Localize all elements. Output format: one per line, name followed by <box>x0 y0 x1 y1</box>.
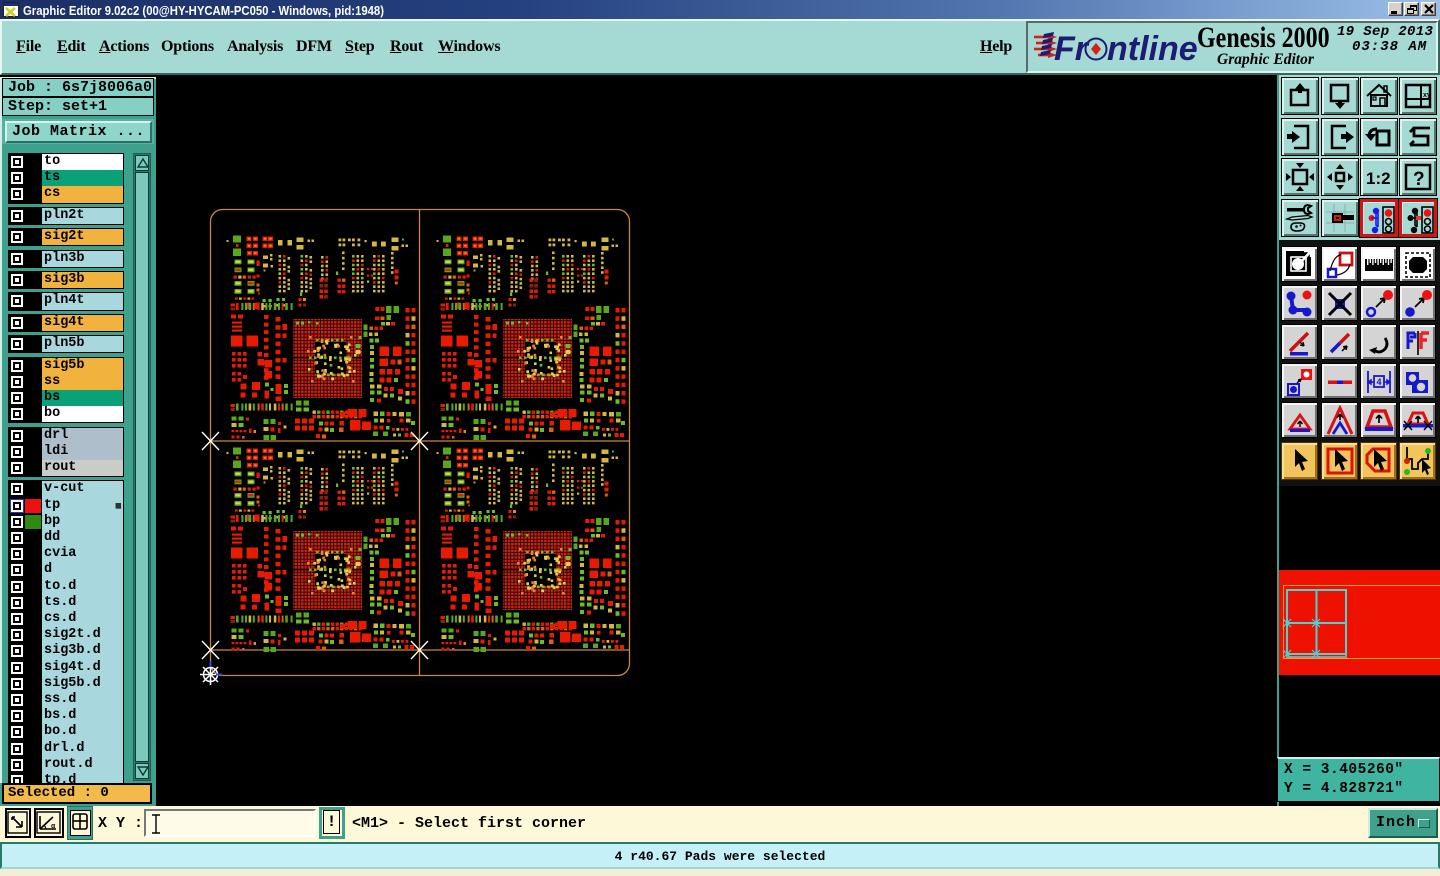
svg-text:4: 4 <box>1377 377 1382 387</box>
svg-text:?: ? <box>1413 169 1425 190</box>
svg-text:ntline: ntline <box>1107 30 1198 68</box>
svg-text:1:2: 1:2 <box>1366 169 1391 188</box>
svg-text:α: α <box>51 823 56 830</box>
svg-text:Fr: Fr <box>1054 30 1090 68</box>
svg-text:xy: xy <box>1423 92 1431 99</box>
